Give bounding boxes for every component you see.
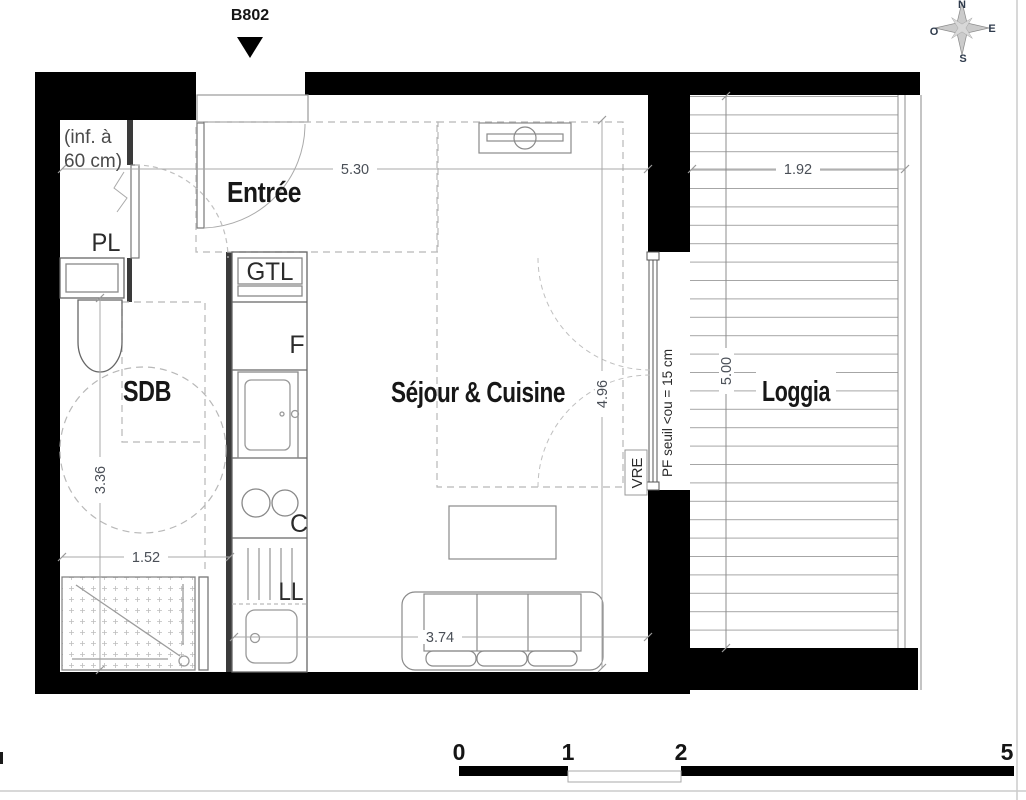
scale-bar: 0 1 2 5 — [453, 739, 1014, 782]
label-pl: PL — [92, 229, 121, 257]
dim-entree-width: 5.30 — [341, 162, 369, 178]
exterior-wall-top — [305, 72, 920, 95]
compass-rose-icon: N E S O — [930, 0, 996, 65]
dim-sdb-width: 1.52 — [132, 550, 160, 566]
dim-loggia-depth: 5.00 — [719, 357, 735, 385]
shower-tray — [62, 577, 195, 670]
gtl-cabinet-strip — [238, 286, 302, 296]
fridge-unit — [238, 372, 298, 458]
shower-screen — [199, 577, 208, 670]
compass-west-label: O — [930, 26, 939, 38]
entry-door-swing — [204, 124, 305, 228]
zone-sejour-dashed — [437, 122, 623, 487]
scale-tick-5: 5 — [1001, 739, 1014, 765]
label-gtl: GTL — [247, 258, 294, 286]
flat-number-label: B802 — [231, 7, 269, 24]
coffee-table — [449, 506, 556, 559]
sdb-door-leaf — [131, 165, 139, 258]
zone-usage-sdb-dashed — [122, 302, 205, 442]
compass-east-label: E — [988, 23, 995, 35]
pl-closet-shelf — [66, 264, 118, 292]
note-ceiling-line2: 60 cm) — [64, 151, 122, 172]
compass-north-label: N — [958, 0, 966, 11]
kitchen-counter — [232, 252, 307, 672]
window-sill-bottom — [647, 482, 659, 490]
exterior-wall-left — [35, 72, 60, 694]
dim-sdb-depth: 3.36 — [93, 466, 109, 494]
entry-door-leaf — [197, 123, 204, 228]
sdb-fixtures — [60, 258, 208, 670]
dim-loggia-width: 1.92 — [784, 162, 812, 178]
label-pf-seuil: PF seuil <ou = 15 cm — [659, 349, 675, 477]
label-vre: VRE — [629, 458, 646, 489]
cooktop-burner-left-icon — [242, 489, 270, 517]
compass-south-label: S — [959, 53, 966, 65]
room-label-entree: Entrée — [227, 177, 301, 209]
entry-arrow-icon — [237, 37, 263, 58]
entry-door-recess — [197, 95, 308, 122]
label-fridge: F — [289, 331, 304, 359]
window-swing-upper-dashed — [538, 258, 650, 370]
scale-tick-0: 0 — [453, 739, 466, 765]
room-label-loggia: Loggia — [762, 376, 831, 408]
note-ceiling-line1: (inf. à — [64, 127, 112, 148]
sink-faucet-icon — [251, 634, 260, 643]
label-cooktop: C — [290, 510, 308, 538]
room-label-sejour: Séjour & Cuisine — [391, 377, 565, 409]
room-label-sdb: SDB — [123, 376, 171, 408]
label-washer: LL — [279, 578, 304, 606]
floor-plan-svg: B802 N E S O — [0, 0, 1026, 800]
break-line-icon — [114, 172, 127, 212]
annotation-labels: PL GTL F C LL VRE PF seuil <ou = 15 cm (… — [64, 127, 675, 606]
sdb-door — [114, 165, 228, 258]
scale-tick-2: 2 — [675, 739, 688, 765]
loggia-divider-wall-upper — [648, 95, 690, 252]
dashed-zones — [60, 122, 623, 572]
wall-vent-knob-icon — [514, 127, 536, 149]
dim-sejour-width: 3.74 — [426, 630, 454, 646]
partition-sdb-door-stub — [127, 120, 133, 165]
partition-pl-side — [127, 258, 132, 302]
wall-vent-bar — [487, 134, 563, 141]
floor-plan-page: B802 N E S O — [0, 0, 1026, 800]
scale-tick-1: 1 — [562, 739, 575, 765]
window-sill-top — [647, 252, 659, 260]
loggia-divider-wall-lower — [648, 490, 690, 672]
exterior-wall-bottom — [35, 672, 690, 694]
sdb-door-swing-dashed — [135, 165, 228, 258]
kitchen-counter-outline — [232, 252, 307, 672]
fridge-hinge-icon — [280, 412, 284, 416]
loggia-railing — [898, 95, 921, 690]
partition-kitchen — [226, 252, 232, 672]
dim-sejour-depth: 4.96 — [595, 380, 611, 408]
